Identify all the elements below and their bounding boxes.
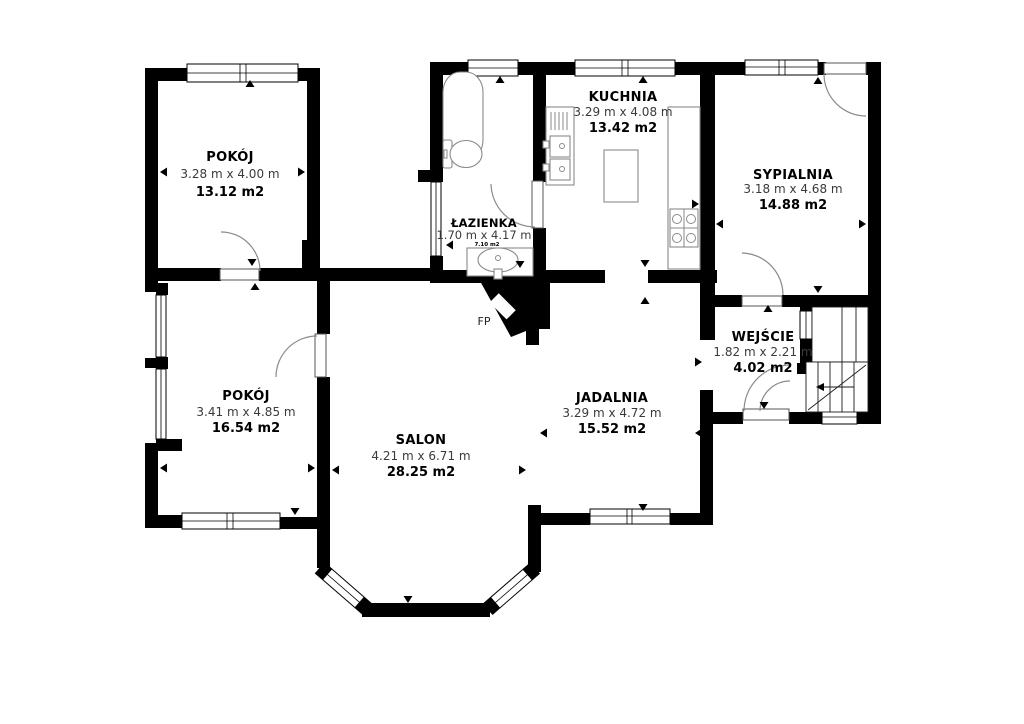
room-label-salon: SALON 4.21 m x 6.71 m 28.25 m2 xyxy=(371,433,470,480)
door-pokoj1 xyxy=(220,232,260,280)
svg-text:3.41 m x 4.85 m: 3.41 m x 4.85 m xyxy=(196,405,295,419)
stairs xyxy=(806,307,868,412)
svg-text:13.12 m2: 13.12 m2 xyxy=(196,185,264,200)
svg-text:1.70 m x 4.17 m: 1.70 m x 4.17 m xyxy=(436,228,531,242)
svg-text:14.88 m2: 14.88 m2 xyxy=(759,198,827,213)
kitchen-island xyxy=(604,150,638,202)
svg-text:28.25 m2: 28.25 m2 xyxy=(387,465,455,480)
svg-text:SYPIALNIA: SYPIALNIA xyxy=(753,168,833,183)
bay-window xyxy=(483,563,539,614)
svg-text:JADALNIA: JADALNIA xyxy=(575,391,648,406)
svg-text:13.42 m2: 13.42 m2 xyxy=(589,121,657,136)
svg-text:3.29 m x 4.72 m: 3.29 m x 4.72 m xyxy=(562,406,661,420)
room-label-jadalnia: JADALNIA 3.29 m x 4.72 m 15.52 m2 xyxy=(562,391,661,437)
svg-text:16.54 m2: 16.54 m2 xyxy=(212,421,280,436)
window xyxy=(468,60,518,76)
svg-text:3.29 m x 4.08 m: 3.29 m x 4.08 m xyxy=(573,105,672,119)
svg-text:15.52 m2: 15.52 m2 xyxy=(578,422,646,437)
window xyxy=(182,513,280,529)
svg-text:POKÓJ: POKÓJ xyxy=(222,388,269,404)
window xyxy=(156,295,166,357)
room-label-kuchnia: KUCHNIA 3.29 m x 4.08 m 13.42 m2 xyxy=(573,90,672,136)
window xyxy=(575,60,675,76)
toilet xyxy=(443,140,482,168)
door-balcony xyxy=(824,63,866,116)
bathroom-sink xyxy=(467,248,533,279)
room-label-pokoj-2: POKÓJ 3.41 m x 4.85 m 16.54 m2 xyxy=(196,388,295,436)
window xyxy=(745,60,818,75)
svg-text:4.21 m x 6.71 m: 4.21 m x 6.71 m xyxy=(371,449,470,463)
svg-text:3.18 m x 4.68 m: 3.18 m x 4.68 m xyxy=(743,182,842,196)
kitchen-sink xyxy=(543,107,574,185)
svg-text:3.28 m x 4.00 m: 3.28 m x 4.00 m xyxy=(180,167,279,181)
svg-text:1.82 m x 2.21 m: 1.82 m x 2.21 m xyxy=(713,345,812,359)
svg-text:POKÓJ: POKÓJ xyxy=(206,149,253,165)
window xyxy=(187,64,298,82)
svg-text:WEJŚCIE: WEJŚCIE xyxy=(732,329,795,345)
bay-window xyxy=(315,563,371,614)
svg-text:4.02 m2: 4.02 m2 xyxy=(733,361,792,376)
window xyxy=(590,509,670,524)
fireplace-label: FP xyxy=(478,315,491,328)
floor-plan: POKÓJ 3.28 m x 4.00 m 13.12 m2 ŁAZIENKA … xyxy=(0,0,1024,724)
window xyxy=(431,182,441,256)
svg-text:7.10 m2: 7.10 m2 xyxy=(474,242,499,248)
door-bedroom xyxy=(742,253,783,306)
room-label-pokoj-1: POKÓJ 3.28 m x 4.00 m 13.12 m2 xyxy=(180,149,279,200)
svg-text:SALON: SALON xyxy=(396,433,447,448)
room-label-sypialnia: SYPIALNIA 3.18 m x 4.68 m 14.88 m2 xyxy=(743,168,842,213)
fireplace xyxy=(480,281,550,345)
stove xyxy=(670,209,698,247)
window xyxy=(800,311,812,339)
door-pokoj2 xyxy=(276,334,326,377)
svg-text:KUCHNIA: KUCHNIA xyxy=(589,90,658,105)
window xyxy=(156,369,166,439)
